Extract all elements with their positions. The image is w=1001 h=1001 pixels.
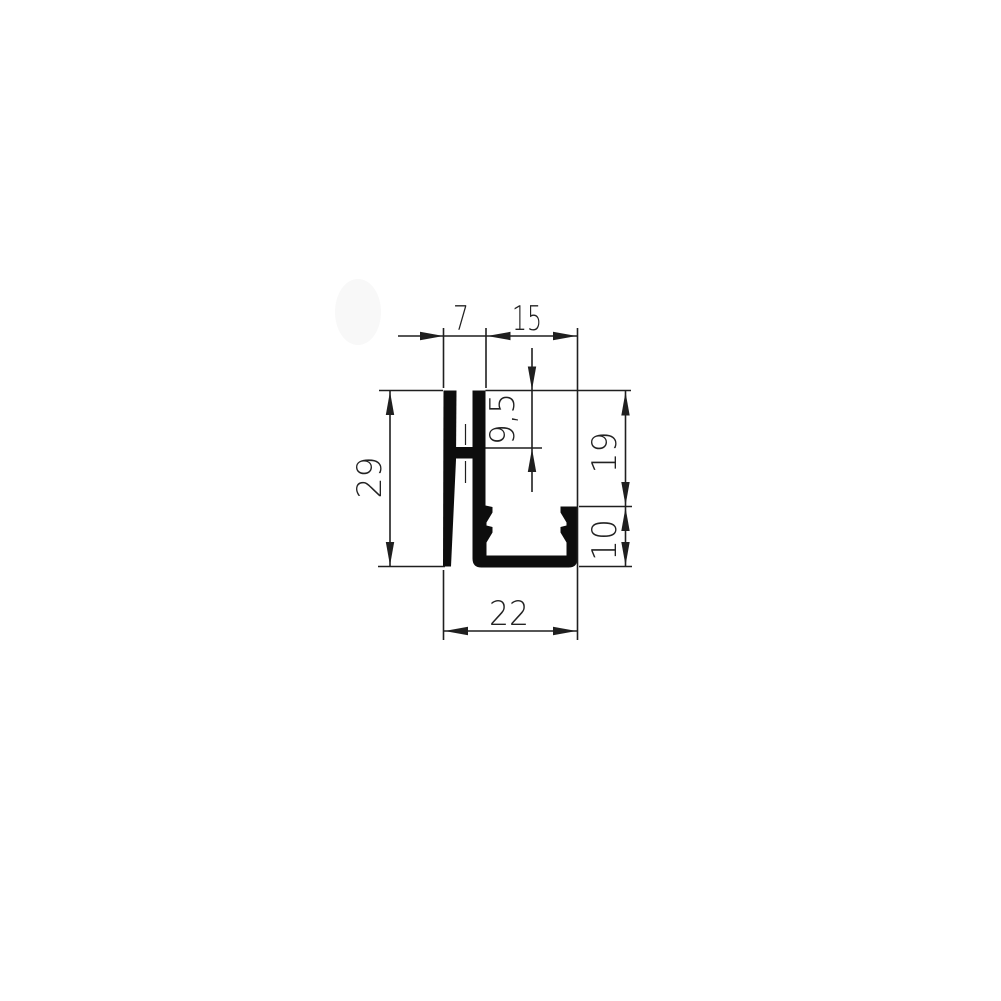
dimension-label-7: 7 <box>453 299 469 339</box>
canvas-background <box>0 0 1001 1001</box>
dimension-label-29: 29 <box>350 457 390 499</box>
dimension-label-15: 15 <box>512 299 542 339</box>
profile-crossbar <box>455 447 474 459</box>
technical-drawing-svg: 7 15 9,5 29 19 10 22 <box>0 0 1001 1001</box>
drawing-canvas: 7 15 9,5 29 19 10 22 <box>0 0 1001 1001</box>
dimension-label-9-5: 9,5 <box>483 393 523 445</box>
watermark-smudge <box>335 279 381 345</box>
dimension-label-10: 10 <box>585 519 625 561</box>
dimension-label-19: 19 <box>585 432 625 474</box>
dimension-label-22: 22 <box>489 594 529 634</box>
